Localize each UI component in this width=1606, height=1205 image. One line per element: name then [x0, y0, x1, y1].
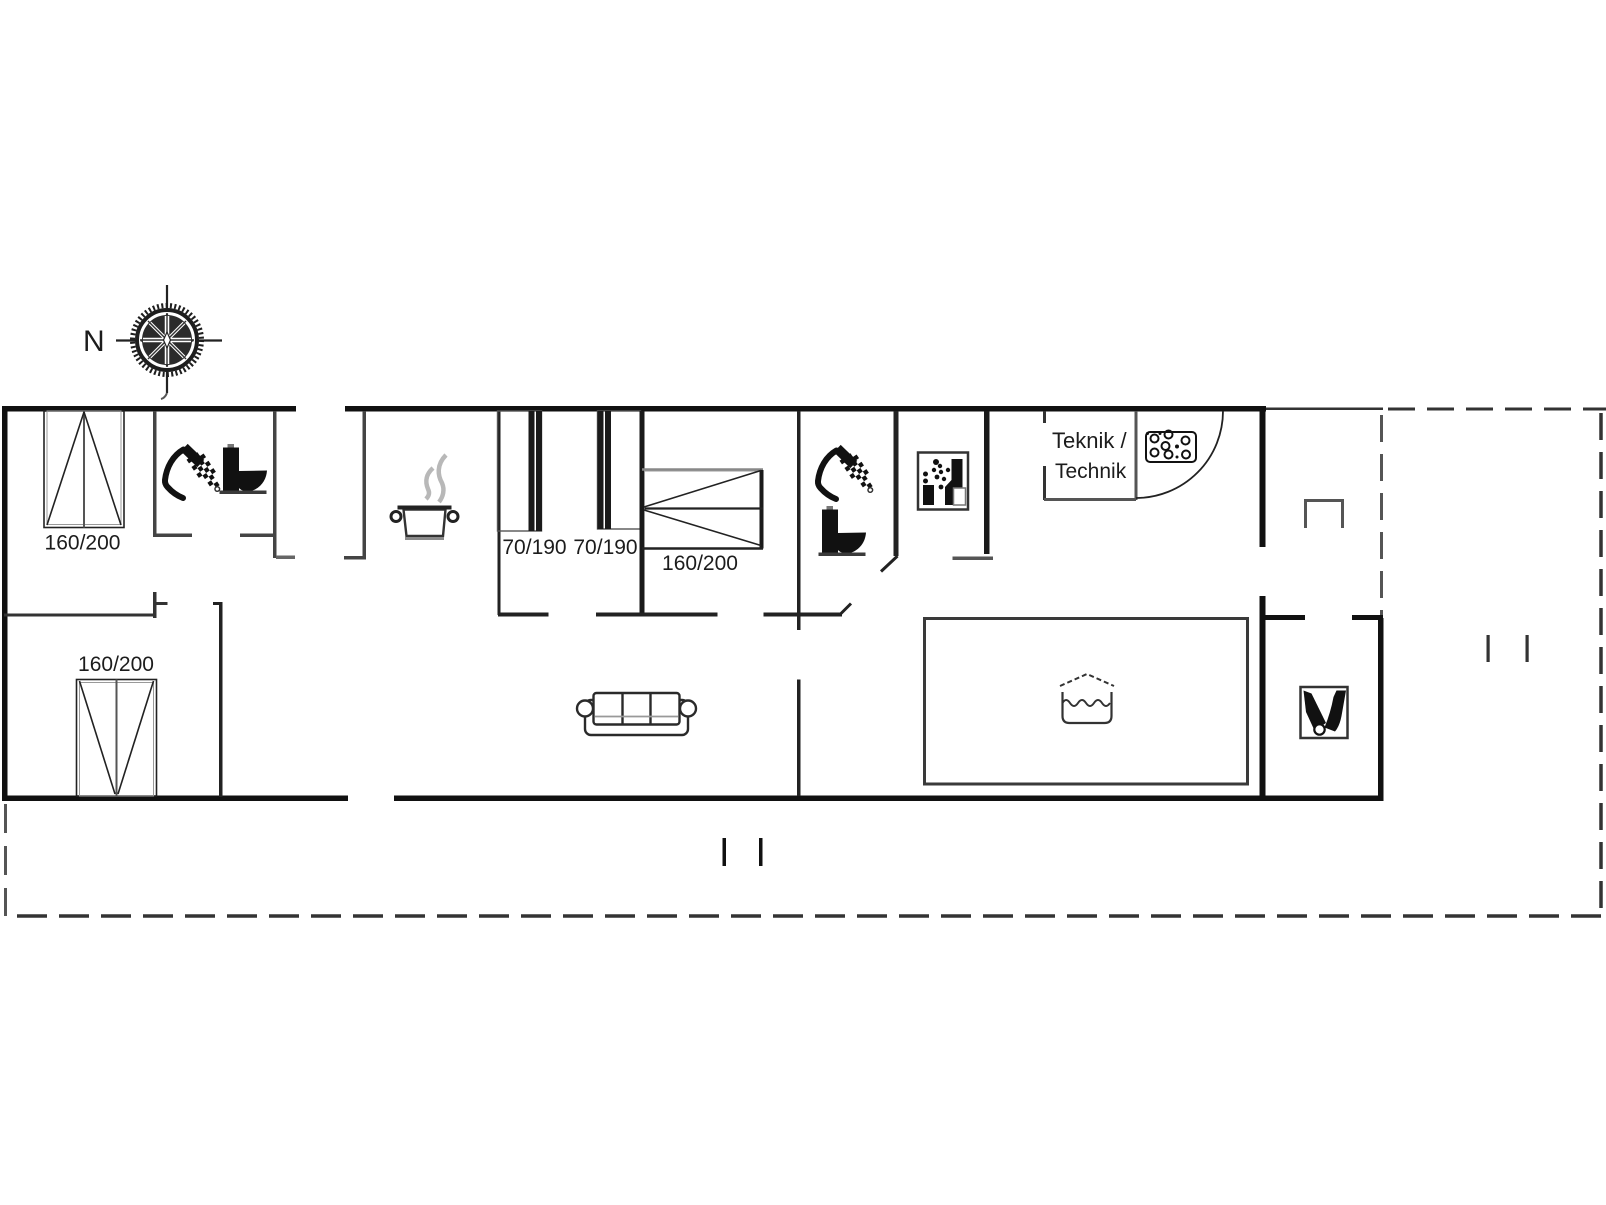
svg-text:160/200: 160/200 [45, 532, 121, 555]
svg-text:70/190: 70/190 [502, 536, 566, 559]
svg-text:160/200: 160/200 [78, 653, 154, 676]
svg-text:160/200: 160/200 [662, 552, 738, 575]
svg-text:Technik: Technik [1055, 460, 1127, 483]
svg-text:Teknik /: Teknik / [1052, 428, 1127, 453]
svg-text:N: N [83, 325, 105, 358]
svg-text:70/190: 70/190 [573, 536, 637, 559]
